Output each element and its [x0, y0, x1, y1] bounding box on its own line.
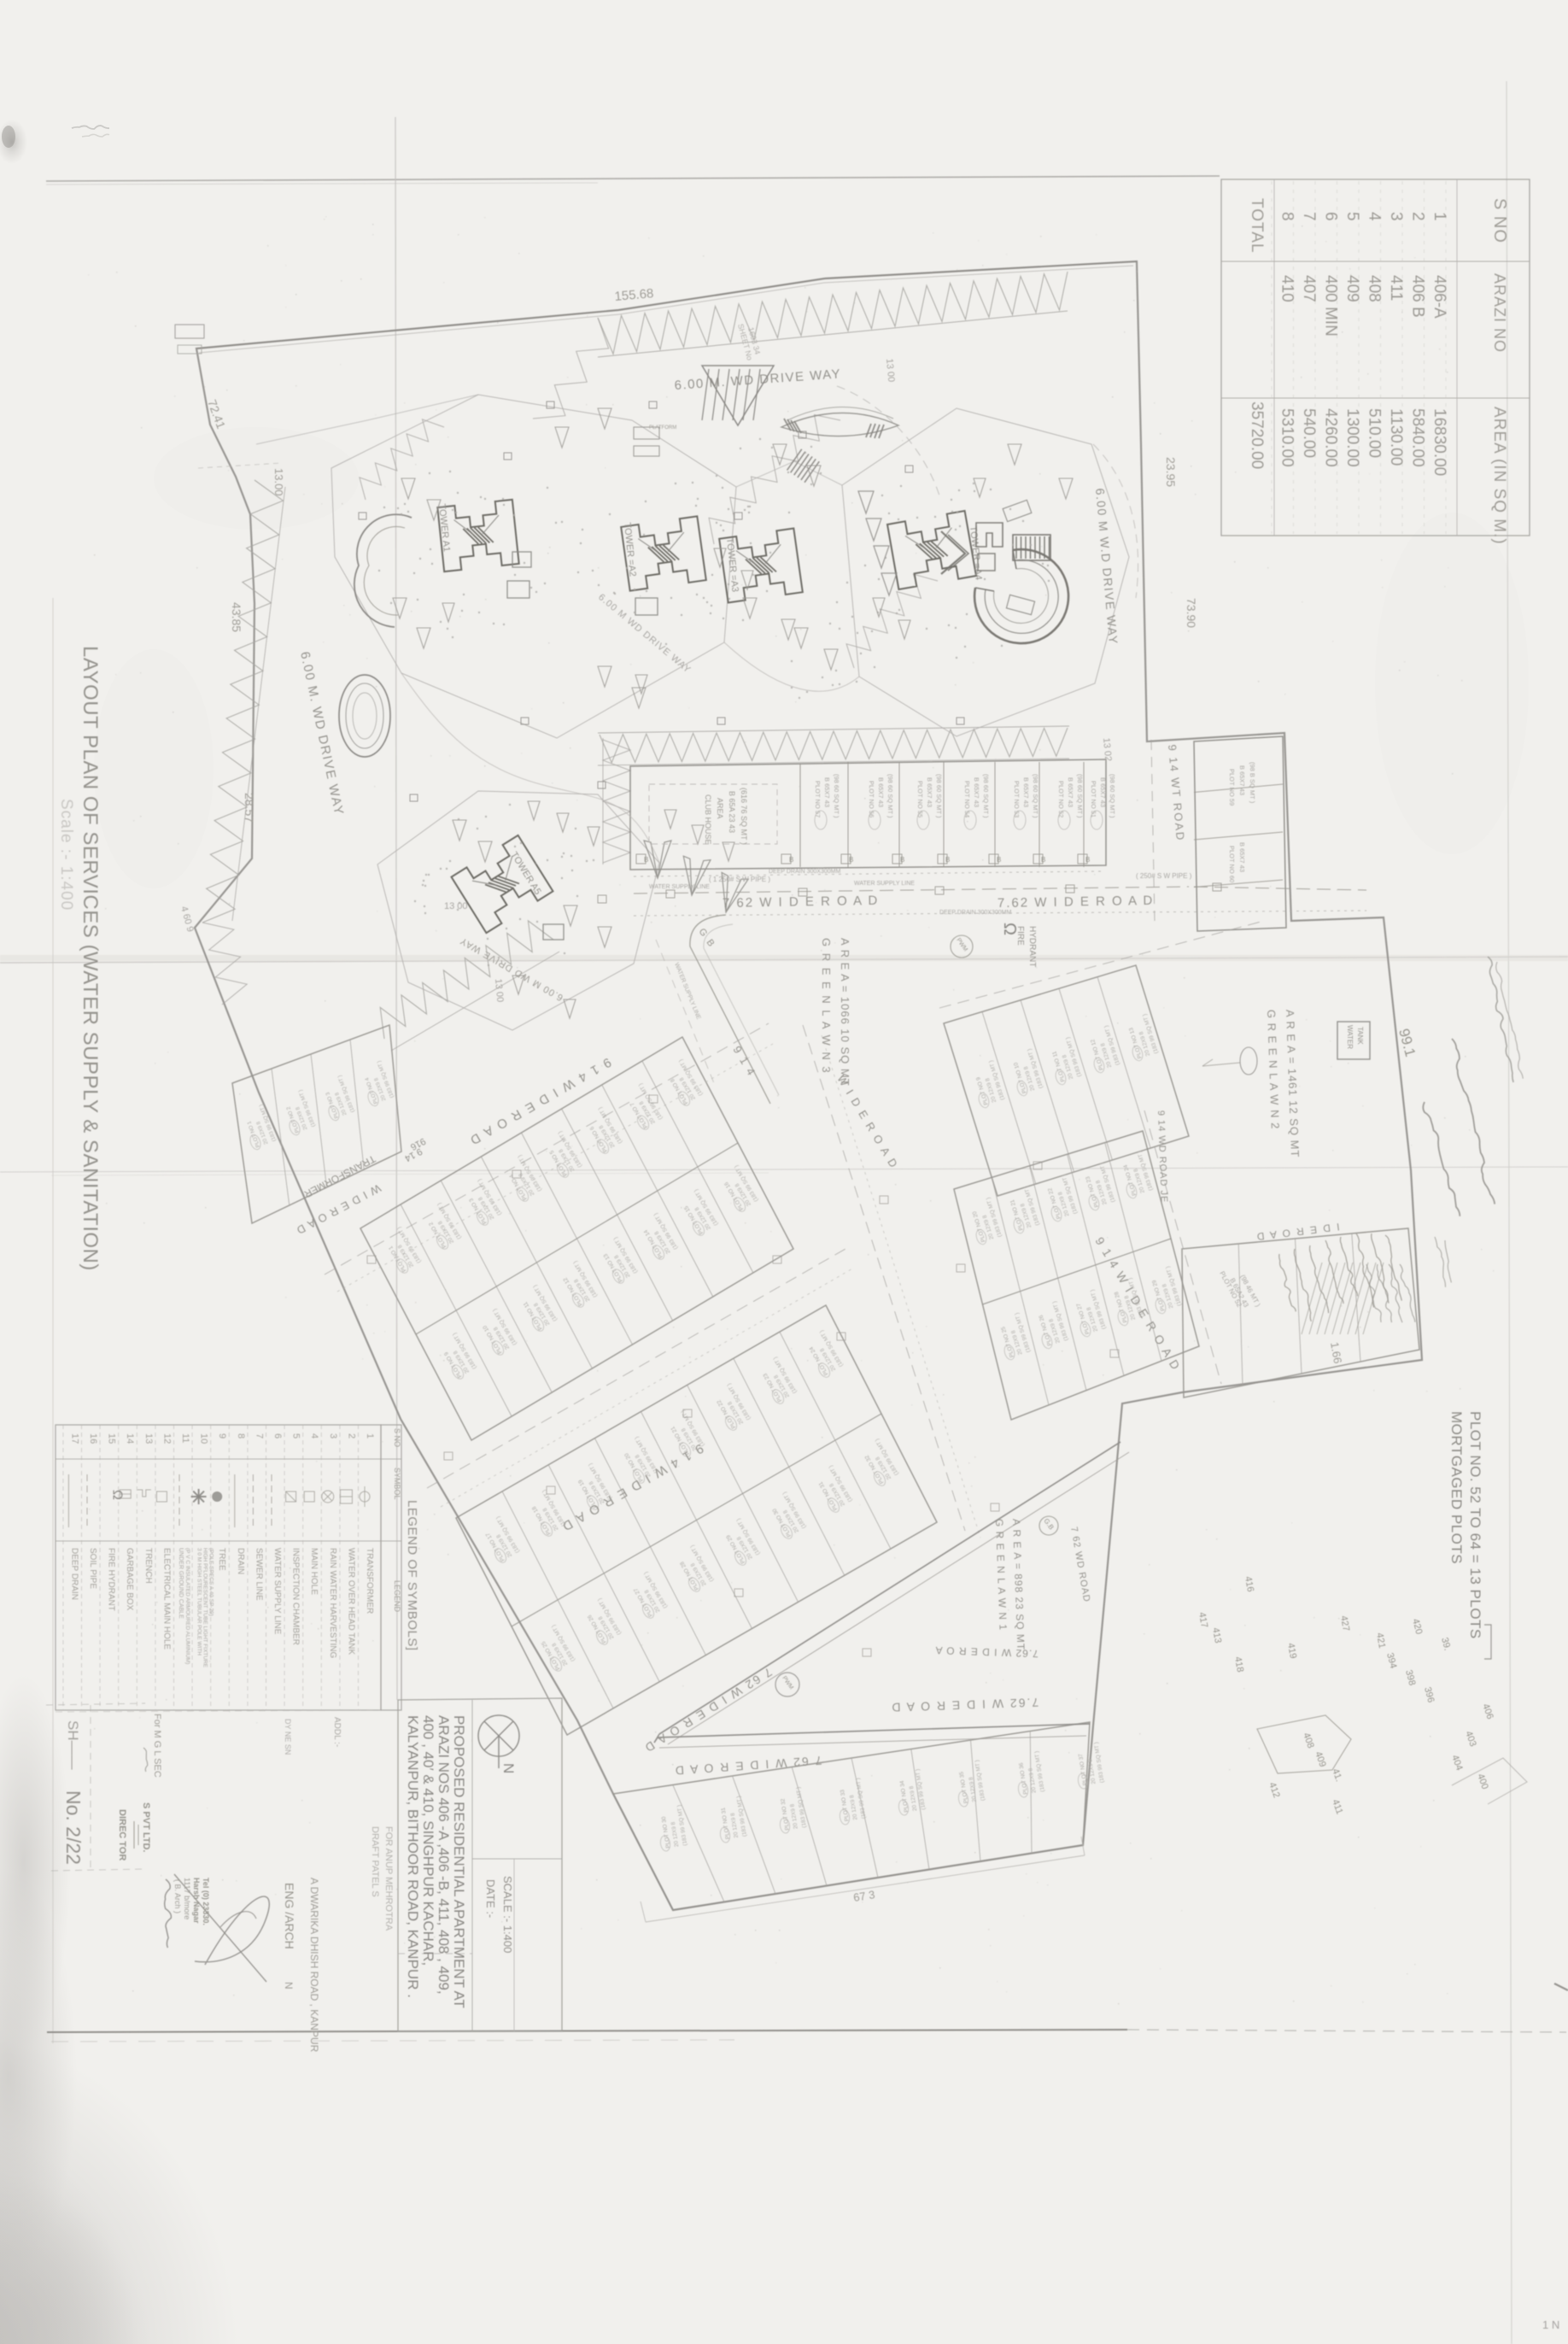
svg-text:PLOT NO 60: PLOT NO 60: [1228, 846, 1236, 882]
svg-text:510.00: 510.00: [1366, 408, 1384, 458]
svg-text:B 65X7 43: B 65X7 43: [1099, 777, 1107, 807]
svg-text:8: 8: [1278, 212, 1296, 221]
svg-text:WATER OVER HEAD TANK: WATER OVER HEAD TANK: [346, 1548, 355, 1655]
svg-text:7: 7: [1300, 212, 1318, 221]
svg-text:23.95: 23.95: [1164, 457, 1178, 487]
svg-text:DEEP DRAIN 300X300MM: DEEP DRAIN 300X300MM: [939, 910, 1011, 916]
svg-text:TRANSFORMER: TRANSFORMER: [365, 1548, 374, 1614]
svg-text:B 65X7 43: B 65X7 43: [973, 777, 980, 807]
svg-text:B 65X7 43: B 65X7 43: [1238, 765, 1246, 795]
svg-text:MAIN HOLE: MAIN HOLE: [309, 1548, 319, 1595]
svg-text:1130.00: 1130.00: [1387, 408, 1405, 466]
svg-text:13: 13: [143, 1433, 154, 1444]
svg-text:RAIN WATER HARVESTING: RAIN WATER HARVESTING: [328, 1548, 337, 1658]
svg-text:2: 2: [1409, 212, 1427, 221]
svg-text:4: 4: [1366, 212, 1384, 221]
svg-text:13 02: 13 02: [1101, 737, 1113, 761]
svg-text:1 N: 1 N: [1542, 2318, 1559, 2331]
svg-text:12: 12: [161, 1433, 172, 1444]
svg-text:(98 60 SQ MT ): (98 60 SQ MT ): [935, 774, 943, 818]
svg-text:(98 60 SQ MT ): (98 60 SQ MT ): [1109, 774, 1116, 818]
svg-text:13 00: 13 00: [444, 901, 468, 911]
svg-text:1300.00: 1300.00: [1343, 408, 1361, 467]
svg-text:B: B: [644, 856, 648, 864]
svg-text:5310.00: 5310.00: [1278, 408, 1296, 467]
svg-text:ARAZI NO: ARAZI NO: [1491, 273, 1508, 353]
svg-text:INSPECTION CHAMBER: INSPECTION CHAMBER: [291, 1548, 301, 1645]
svg-text:Ω: Ω: [1000, 923, 1019, 935]
svg-text:B 65X7 43: B 65X7 43: [823, 777, 831, 807]
svg-text:408: 408: [1366, 275, 1384, 302]
svg-text:DRAFT PATEL S: DRAFT PATEL S: [370, 1826, 380, 1897]
svg-text:13.00: 13.00: [272, 468, 285, 496]
svg-text:Harsh Nagar: Harsh Nagar: [192, 1878, 201, 1924]
svg-text:10: 10: [199, 1433, 209, 1444]
svg-text:409: 409: [1343, 275, 1361, 302]
svg-text:( 1 250# S W PIPE ): ( 1 250# S W PIPE ): [709, 876, 770, 883]
svg-text:9: 9: [217, 1433, 227, 1439]
svg-text:(98 60 SQ MT ): (98 60 SQ MT ): [1032, 774, 1039, 818]
svg-text:B 65X7 43: B 65X7 43: [1238, 842, 1246, 872]
svg-text:LEGEND: LEGEND: [393, 1580, 401, 1613]
svg-text:PLOT NO 59: PLOT NO 59: [1228, 769, 1236, 806]
svg-text:N: N: [500, 1763, 517, 1773]
svg-text:No. 2/22: No. 2/22: [62, 1790, 85, 1865]
svg-text:DEEP DRAIN: DEEP DRAIN: [69, 1548, 79, 1600]
svg-text:AREA (IN SQ M.): AREA (IN SQ M.): [1490, 407, 1508, 545]
svg-text:B 65X7 43: B 65X7 43: [1022, 777, 1030, 807]
svg-text:TRENCH: TRENCH: [143, 1548, 153, 1584]
svg-text:SH——: SH——: [65, 1720, 81, 1770]
svg-text:Ω: Ω: [110, 1490, 125, 1500]
svg-text:B: B: [789, 856, 793, 864]
svg-text:TANK: TANK: [1356, 1027, 1364, 1045]
svg-text:SCALE :- 1:400: SCALE :- 1:400: [501, 1876, 514, 1953]
svg-text:UNDER GROUND CABLE: UNDER GROUND CABLE: [178, 1548, 184, 1619]
svg-text:15: 15: [107, 1433, 117, 1444]
svg-text:( 250# S W PIPE ): ( 250# S W PIPE ): [1136, 872, 1192, 880]
svg-text:(98 60 SQ MT ): (98 60 SQ MT ): [982, 774, 990, 818]
svg-text:1117 b/more: 1117 b/more: [183, 1878, 191, 1919]
svg-text:5840.00: 5840.00: [1409, 408, 1427, 467]
svg-text:S NO: S NO: [393, 1428, 401, 1447]
svg-text:FOR ANUP MEHROTRA: FOR ANUP MEHROTRA: [383, 1826, 394, 1931]
svg-text:A R E A = 1066 10 SQ MT: A R E A = 1066 10 SQ MT: [839, 938, 851, 1087]
svg-text:MORTGAGED PLOTS: MORTGAGED PLOTS: [1448, 1411, 1465, 1564]
svg-text:13 00: 13 00: [493, 978, 505, 1002]
svg-text:PLOT NO. 52 TO 64 = 13 PLOTS: PLOT NO. 52 TO 64 = 13 PLOTS: [1467, 1411, 1483, 1639]
svg-text:S NO: S NO: [1490, 198, 1509, 243]
svg-text:WATER SUPPLY LINE: WATER SUPPLY LINE: [649, 884, 710, 890]
svg-text:KALYANPUR, BITHOOR ROAD, KANPU: KALYANPUR, BITHOOR ROAD, KANPUR .: [405, 1715, 421, 1998]
svg-text:GARBAGE BOX: GARBAGE BOX: [125, 1548, 134, 1611]
svg-text:ELECTRICAL MAIN HOLE: ELECTRICAL MAIN HOLE: [161, 1548, 171, 1650]
svg-text:B: B: [1041, 856, 1045, 864]
svg-text:B: B: [945, 856, 950, 864]
svg-text:LAYOUT PLAN OF SERVICES (WATER: LAYOUT PLAN OF SERVICES (WATER SUPPLY & …: [79, 646, 102, 1271]
svg-text:WATER SUPPLY LINE: WATER SUPPLY LINE: [272, 1548, 282, 1635]
svg-text:3: 3: [1387, 212, 1405, 221]
svg-text:TOTAL: TOTAL: [1248, 198, 1266, 253]
svg-text:11: 11: [180, 1433, 190, 1443]
svg-text:DIREC TOR: DIREC TOR: [117, 1809, 127, 1861]
svg-text:TREE: TREE: [217, 1548, 226, 1571]
svg-text:407: 407: [1300, 275, 1318, 302]
svg-text:3: 3: [328, 1433, 338, 1439]
svg-text:(POLE SPECS A 40 SP-29): (POLE SPECS A 40 SP-29): [208, 1548, 214, 1616]
svg-text:PLATFORM: PLATFORM: [649, 425, 676, 431]
svg-text:SYMBOL: SYMBOL: [393, 1468, 401, 1500]
svg-text:4260.00: 4260.00: [1322, 408, 1340, 467]
svg-text:1: 1: [365, 1433, 375, 1439]
svg-text:SEWER LINE: SEWER LINE: [254, 1548, 263, 1601]
svg-text:400 , 40′ & 410, SINGHPUR KACH: 400 , 40′ & 410, SINGHPUR KACHAR,: [420, 1715, 436, 1966]
svg-text:(P V C INSULATED ARMOURED ALU: (P V C INSULATED ARMOURED ALUMINIUM): [184, 1548, 190, 1664]
svg-text:16830.00: 16830.00: [1431, 408, 1448, 476]
svg-text:For M G L SEC: For M G L SEC: [152, 1714, 162, 1778]
svg-text:406-A: 406-A: [1431, 275, 1448, 319]
svg-text:G R E E N L A W N 3: G R E E N L A W N 3: [820, 938, 833, 1075]
svg-text:B 65X7 43: B 65X7 43: [926, 777, 933, 807]
svg-text:8: 8: [236, 1433, 246, 1439]
svg-text:ARAZI NOS 406 -A ,406 -B, 411: ARAZI NOS 406 -A ,406 -B, 411, 408 , 409…: [436, 1715, 452, 1995]
svg-text:14: 14: [125, 1433, 135, 1444]
svg-text:(98 60 SQ MT ): (98 60 SQ MT ): [886, 774, 894, 818]
svg-text:5: 5: [291, 1433, 301, 1439]
svg-text:DATE :-: DATE :-: [484, 1879, 497, 1918]
svg-text:16: 16: [88, 1433, 98, 1444]
svg-text:43.85: 43.85: [230, 602, 243, 632]
svg-text:Scale :- 1:400: Scale :- 1:400: [57, 799, 75, 911]
svg-text:A DWARIKA DHISH ROAD , KANPUR: A DWARIKA DHISH ROAD , KANPUR: [308, 1878, 320, 2053]
svg-text:AREA: AREA: [716, 798, 724, 819]
svg-text:35720.00: 35720.00: [1248, 401, 1266, 469]
svg-text:17: 17: [69, 1433, 79, 1444]
svg-text:73.90: 73.90: [1185, 598, 1198, 628]
svg-text:ENG /ARCH: ENG /ARCH: [283, 1883, 296, 1949]
svg-text:HIGH PFLOURESCENT TUBE LIGHT F: HIGH PFLOURESCENT TUBE LIGHT FIXTURE: [202, 1548, 208, 1668]
svg-text:WATER: WATER: [1346, 1025, 1354, 1049]
svg-text:406 B: 406 B: [1409, 275, 1427, 318]
svg-text:B: B: [997, 856, 1001, 864]
svg-text:B: B: [900, 856, 904, 864]
svg-text:(98 60 SQ MT ): (98 60 SQ MT ): [1076, 774, 1084, 818]
svg-text:B 65A 23 43: B 65A 23 43: [728, 791, 736, 833]
svg-text:5: 5: [1343, 212, 1361, 221]
svg-text:B: B: [1085, 856, 1090, 864]
svg-text:540.00: 540.00: [1300, 408, 1318, 458]
svg-text:1: 1: [1431, 212, 1448, 221]
svg-text:PROPOSED RESIDENTIAL APARTMENT: PROPOSED RESIDENTIAL APARTMENT AT: [451, 1715, 467, 2008]
svg-text:7: 7: [254, 1433, 264, 1439]
svg-text:2: 2: [346, 1433, 356, 1439]
svg-text:CLUB HOUSE: CLUB HOUSE: [704, 794, 712, 845]
svg-text:DRAIN: DRAIN: [236, 1548, 245, 1574]
svg-text:SOIL PIPE: SOIL PIPE: [88, 1548, 97, 1589]
svg-text:B 65X7 43: B 65X7 43: [877, 777, 885, 807]
svg-text:13 00: 13 00: [884, 358, 896, 382]
svg-text:N: N: [283, 1982, 295, 1989]
svg-text:Tel (0) 23330.: Tel (0) 23330.: [202, 1878, 210, 1925]
svg-text:S PVT LTD.: S PVT LTD.: [141, 1802, 151, 1852]
svg-text:HYDRANT: HYDRANT: [1027, 926, 1037, 967]
svg-text:FIRE HYDRANT: FIRE HYDRANT: [107, 1548, 116, 1611]
svg-text:(616 76 SQ MT ): (616 76 SQ MT ): [740, 788, 748, 845]
svg-text:B 65X7 43: B 65X7 43: [1067, 777, 1074, 807]
svg-text:DEEP DRAIN 300X300MM: DEEP DRAIN 300X300MM: [769, 869, 840, 875]
svg-text:( B. Arch ): ( B. Arch ): [173, 1879, 182, 1913]
svg-text:400 MIN: 400 MIN: [1322, 275, 1340, 337]
svg-text:DY NE SN: DY NE SN: [284, 1719, 292, 1755]
svg-text:7.62 W I D E R O A D: 7.62 W I D E R O A D: [998, 894, 1155, 911]
svg-text:ADDL :-: ADDL :-: [332, 1717, 342, 1747]
svg-text:6: 6: [1322, 212, 1340, 221]
svg-text:410: 410: [1278, 275, 1296, 302]
svg-text:411: 411: [1387, 275, 1405, 301]
svg-text:4: 4: [309, 1433, 319, 1439]
svg-text:LEGEND OF SYMBOLS]: LEGEND OF SYMBOLS]: [405, 1500, 419, 1651]
svg-text:(98 B SQ MT ): (98 B SQ MT ): [1249, 762, 1256, 804]
svg-text:(98 60 SQ MT ): (98 60 SQ MT ): [833, 774, 840, 818]
svg-text:3 0 M HIGH STEEL TUBULAR POLE: 3 0 M HIGH STEEL TUBULAR POLE WITH: [196, 1548, 202, 1655]
svg-text:B: B: [849, 856, 853, 864]
svg-text:6: 6: [272, 1433, 283, 1439]
